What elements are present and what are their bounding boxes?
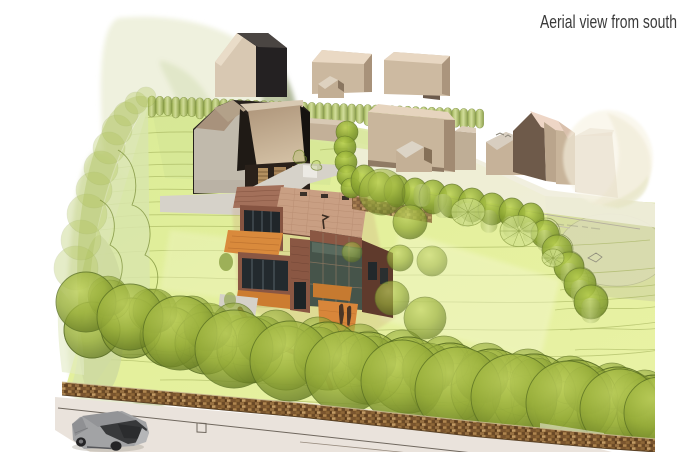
svg-text:Aerial view from south: Aerial view from south — [540, 12, 677, 32]
